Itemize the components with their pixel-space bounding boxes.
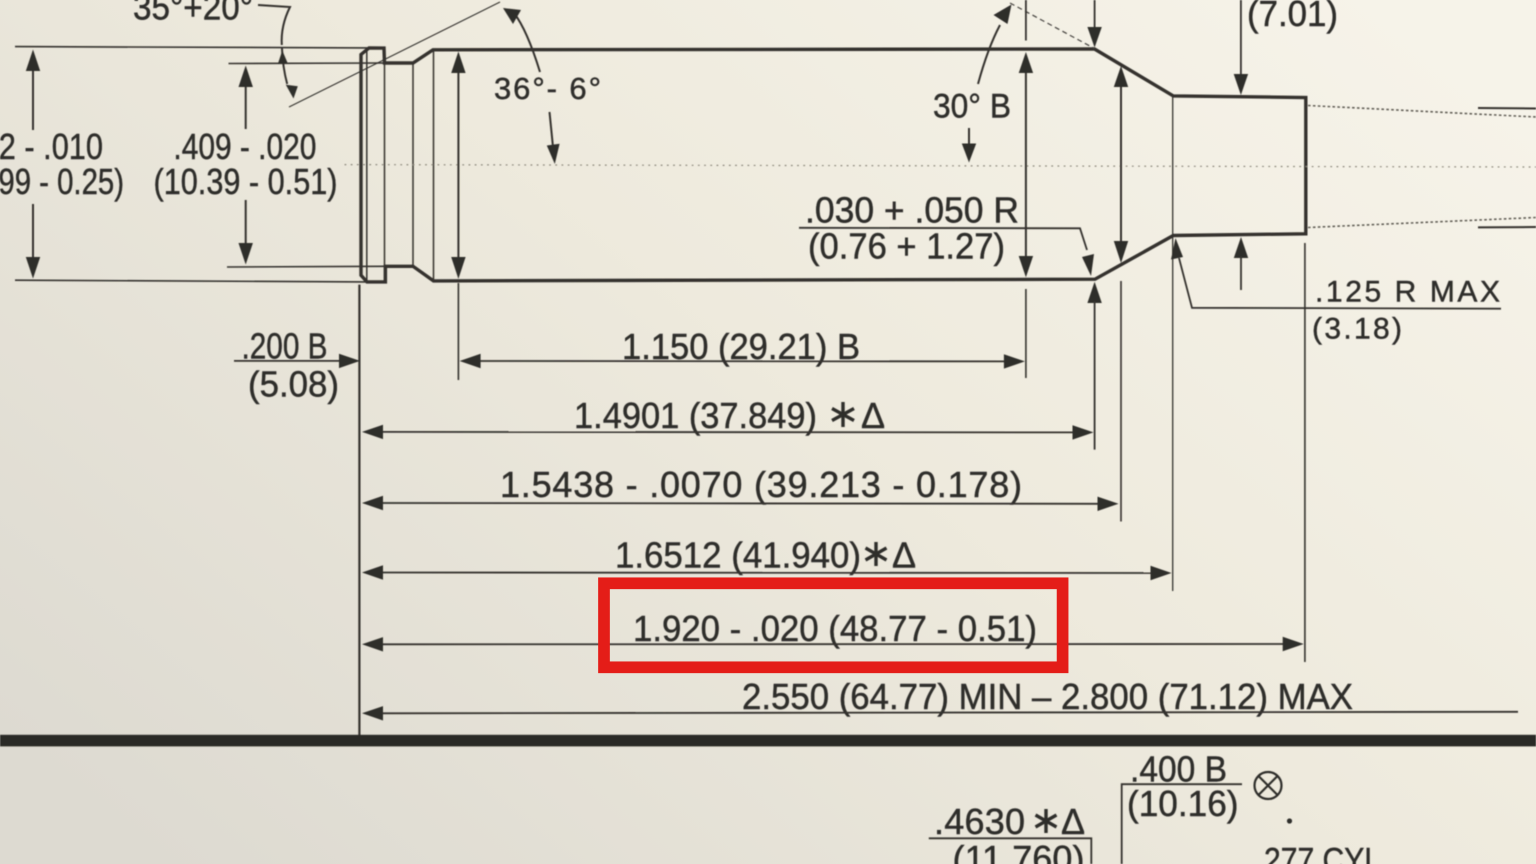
svg-text:Δ: Δ (892, 535, 916, 576)
svg-text:1.5438 - .0070 (39.213 - 0.178: 1.5438 - .0070 (39.213 - 0.178) (500, 464, 1022, 505)
svg-text:35°+20°: 35°+20° (133, 0, 253, 28)
svg-text:36°- 6°: 36°- 6° (494, 71, 601, 106)
svg-text:1.6512 (41.940): 1.6512 (41.940) (615, 535, 861, 576)
svg-text:(0.76 + 1.27): (0.76 + 1.27) (808, 226, 1005, 267)
svg-text:(10.39 - 0.51): (10.39 - 0.51) (154, 161, 338, 202)
svg-text:277 CYL: 277 CYL (1264, 842, 1381, 864)
svg-text:.030 + .050 R: .030 + .050 R (805, 190, 1019, 231)
svg-text:(11.99 - 0.25): (11.99 - 0.25) (0, 161, 124, 202)
svg-text:(11.760): (11.760) (953, 838, 1085, 864)
svg-text:1.920 - .020 (48.77 - 0.51): 1.920 - .020 (48.77 - 0.51) (633, 608, 1037, 649)
svg-text:(7.01): (7.01) (1247, 0, 1338, 34)
svg-text:(10.16): (10.16) (1127, 783, 1239, 824)
svg-text:.4630: .4630 (934, 801, 1025, 842)
svg-text:2.550 (64.77) MIN – 2.800 (71.: 2.550 (64.77) MIN – 2.800 (71.12) MAX (742, 676, 1353, 717)
svg-text:Δ: Δ (1061, 801, 1085, 842)
svg-text:1.4901 (37.849): 1.4901 (37.849) (574, 395, 817, 436)
svg-text:Δ: Δ (861, 395, 885, 436)
svg-text:(3.18): (3.18) (1312, 313, 1402, 346)
svg-text:(5.08): (5.08) (248, 364, 339, 405)
svg-text:30° B: 30° B (933, 88, 1011, 126)
